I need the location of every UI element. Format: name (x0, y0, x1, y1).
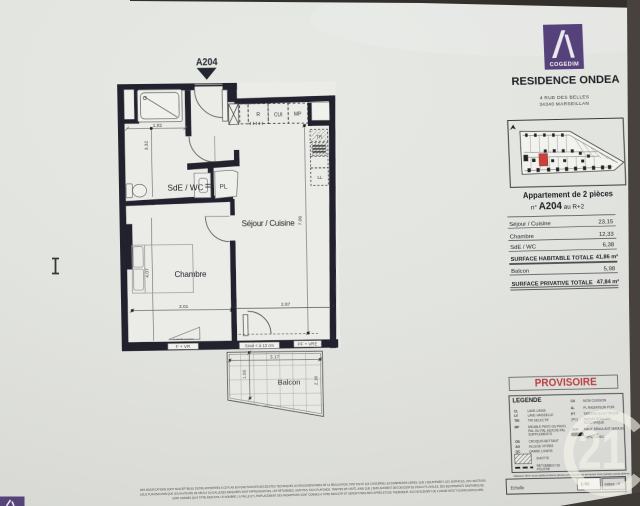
svg-text:4.07: 4.07 (145, 268, 151, 278)
svg-text:6,38: 6,38 (603, 242, 615, 248)
svg-text:QARRE UTAPIS: QARRE UTAPIS (529, 449, 553, 454)
svg-text:A204: A204 (196, 57, 218, 68)
svg-text:12,33: 12,33 (599, 232, 615, 238)
svg-text:SdE / WC: SdE / WC (510, 244, 537, 251)
svg-text:5,98: 5,98 (604, 266, 616, 272)
svg-text:TR: TR (316, 134, 323, 139)
svg-text:47,84 m²: 47,84 m² (597, 278, 620, 285)
svg-text:CL: CL (514, 409, 518, 413)
svg-text:TRI SELECTIF: TRI SELECTIF (528, 418, 549, 422)
svg-text:CB: CB (515, 440, 520, 444)
svg-text:7.06: 7.06 (298, 216, 304, 226)
svg-text:COGEDIM: COGEDIM (550, 62, 580, 69)
svg-text:AG: AG (515, 445, 520, 449)
svg-text:SURFACE PRIVATIVE TOTALE: SURFACE PRIVATIVE TOTALE (512, 280, 593, 288)
svg-text:CROQUIS BETTANT: CROQUIS BETTANT (529, 439, 559, 444)
svg-text:LL: LL (317, 175, 323, 180)
svg-text:CUI: CUI (274, 112, 283, 118)
svg-text:Séjour / Cuisine: Séjour / Cuisine (242, 219, 296, 229)
svg-text:4L: 4L (571, 406, 575, 410)
svg-text:LAVE-VAISSELLE: LAVE-VAISSELLE (527, 413, 553, 418)
svg-text:LV: LV (514, 414, 519, 418)
svg-text:TRI: TRI (514, 419, 519, 423)
svg-text:2.87: 2.87 (281, 302, 291, 308)
svg-text:PL RADIATEUR POM: PL RADIATEUR POM (583, 405, 614, 410)
svg-text:SHOTTE: SHOTTE (536, 456, 549, 460)
svg-text:23,15: 23,15 (598, 219, 614, 225)
svg-text:CU: CU (570, 399, 575, 403)
svg-text:SUPPLEMENTS: SUPPLEMENTS (528, 432, 552, 437)
svg-text:F + VR: F + VR (176, 344, 191, 349)
svg-text:21: 21 (578, 419, 625, 481)
svg-text:Séjour / Cuisine: Séjour / Cuisine (509, 221, 552, 228)
svg-text:1 vantail ouvrant: 1 vantail ouvrant (173, 337, 194, 341)
svg-text:n° A204 au R+2: n° A204 au R+2 (531, 200, 585, 212)
svg-text:Balcon: Balcon (278, 378, 301, 387)
svg-text:Seuil < à 13 cm: Seuil < à 13 cm (245, 343, 275, 348)
svg-text:PF + VRE: PF + VRE (298, 341, 318, 346)
svg-text:Echelle: Echelle (510, 485, 525, 490)
svg-text:Balcon: Balcon (511, 268, 529, 274)
svg-text:PT: PT (571, 412, 575, 416)
svg-text:3.17: 3.17 (270, 354, 280, 360)
svg-text:1.55: 1.55 (242, 369, 248, 379)
svg-text:3.01: 3.01 (179, 304, 189, 310)
svg-text:MP: MP (514, 425, 520, 429)
svg-text:SdE / WC: SdE / WC (167, 183, 203, 192)
svg-text:34340 MARSEILLAN: 34340 MARSEILLAN (539, 101, 589, 108)
svg-text:R: R (256, 112, 260, 118)
svg-text:Chambre: Chambre (174, 270, 207, 279)
svg-text:(PC): (PC) (571, 417, 578, 421)
svg-text:MCM CUISSON: MCM CUISSON (583, 399, 607, 404)
svg-text:41,86 m²: 41,86 m² (596, 253, 619, 260)
svg-text:MP: MP (294, 112, 302, 118)
svg-text:LAVE-LINGE: LAVE-LINGE (527, 409, 546, 413)
svg-text:QC: QC (515, 450, 521, 454)
svg-text:Appartement de 2 pièces: Appartement de 2 pièces (523, 189, 614, 200)
svg-text:ALLEGE VITREE: ALLEGE VITREE (529, 444, 554, 449)
svg-text:LEGENDE: LEGENDE (512, 397, 541, 405)
svg-text:1.82: 1.82 (153, 123, 163, 129)
svg-text:2.16: 2.16 (314, 375, 320, 385)
svg-text:4 RUE DES BELLES: 4 RUE DES BELLES (540, 94, 590, 101)
svg-text:POUTRE: POUTRE (537, 467, 550, 471)
svg-text:PROVISOIRE: PROVISOIRE (535, 376, 597, 389)
svg-text:Chambre: Chambre (510, 234, 535, 241)
svg-text:3.32: 3.32 (143, 140, 149, 150)
svg-text:RESIDENCE ONDEA: RESIDENCE ONDEA (511, 74, 620, 88)
svg-text:PL: PL (219, 184, 227, 191)
